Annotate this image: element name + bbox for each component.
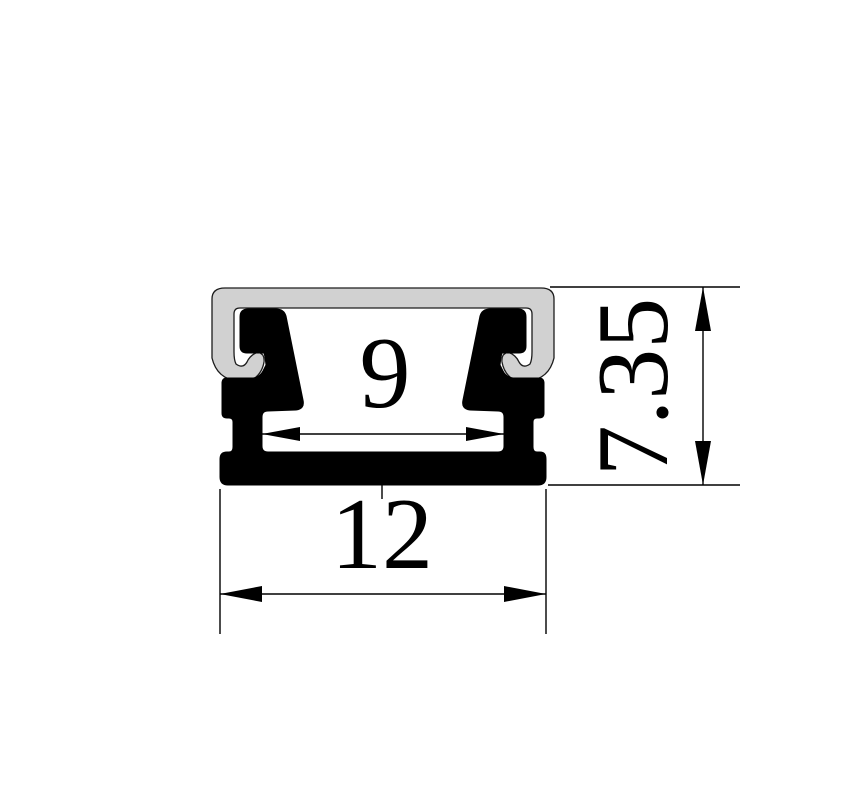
inner-width-arrow-left-icon (262, 427, 300, 441)
outer-width-value: 12 (331, 478, 433, 591)
profile-cross-section-drawing: 9 12 7.35 (0, 0, 849, 808)
outer-width-arrow-right-icon (504, 586, 546, 602)
dimension-outer-width: 12 (220, 478, 546, 634)
height-arrow-top-icon (695, 287, 711, 331)
height-arrow-bottom-icon (695, 441, 711, 485)
drawing-page: 9 12 7.35 (0, 0, 849, 808)
outer-width-arrow-left-icon (220, 586, 262, 602)
height-value: 7.35 (577, 298, 690, 477)
inner-width-arrow-right-icon (466, 427, 504, 441)
inner-width-value: 9 (360, 317, 411, 430)
dimension-height: 7.35 (548, 287, 740, 485)
